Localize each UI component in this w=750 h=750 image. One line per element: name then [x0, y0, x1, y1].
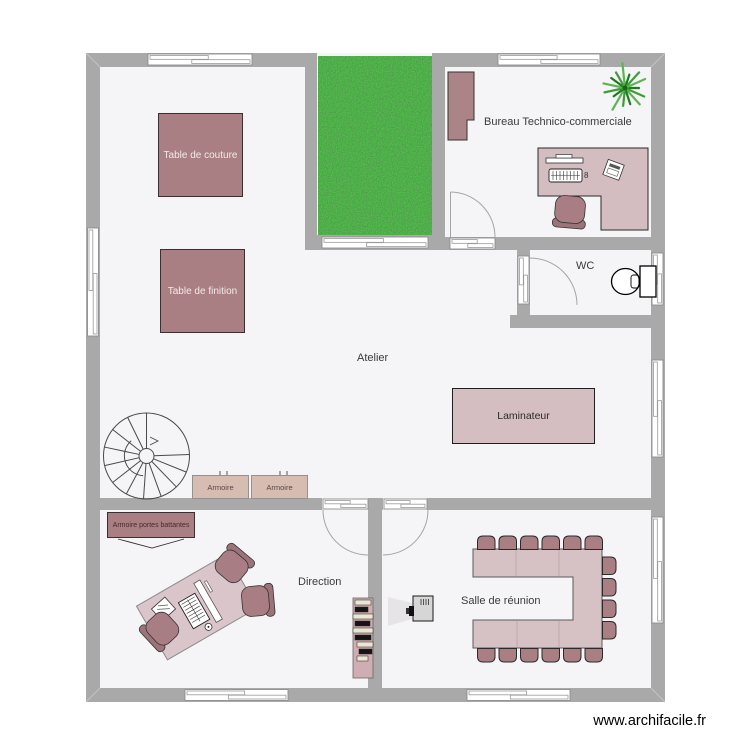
grass-patio-icon [318, 56, 432, 235]
meeting-chair-icon [603, 622, 617, 640]
meeting-chair-icon [521, 536, 539, 550]
room-label-salle-reunion: Salle de réunion [461, 595, 541, 607]
door-threshold-icon [384, 499, 427, 509]
desk-count-badge: 8 [584, 171, 588, 180]
meeting-chair-icon [478, 536, 496, 550]
room-label-direction: Direction [298, 576, 341, 588]
meeting-chair-icon [564, 536, 582, 550]
armoire-1-label: Armoire [207, 483, 233, 492]
meeting-chair-icon [521, 649, 539, 663]
floor-plan-canvas [0, 0, 750, 750]
watermark: www.archifacile.fr [593, 713, 706, 729]
meeting-chair-icon [585, 649, 603, 663]
office-chair-icon [552, 195, 588, 230]
meeting-chair-icon [585, 536, 603, 550]
window-icon [467, 690, 570, 701]
armoire-pb-label: Armoire portes battantes [113, 522, 190, 529]
office-chair-icon [241, 583, 276, 619]
bookshelf-icon [353, 598, 373, 678]
toilet-icon [612, 266, 657, 297]
door-threshold-icon [450, 238, 495, 249]
table-finition: Table de finition [160, 249, 245, 333]
meeting-chair-icon [603, 579, 617, 597]
door-threshold-icon [323, 499, 368, 509]
table-couture-label: Table de couture [164, 150, 238, 161]
meeting-chair-icon [564, 649, 582, 663]
armoire-2: Armoire [251, 475, 308, 499]
meeting-chair-icon [603, 557, 617, 575]
meeting-chair-icon [499, 536, 517, 550]
meeting-chair-icon [603, 600, 617, 618]
room-label-atelier: Atelier [357, 352, 388, 364]
monitor-icon [546, 158, 583, 163]
window-icon [652, 517, 663, 623]
laminateur-label: Laminateur [497, 410, 550, 422]
armoire-portes-battantes: Armoire portes battantes [107, 512, 195, 538]
floor-plan-page: Bureau Technico-commerciale WC Atelier D… [0, 0, 750, 750]
window-icon [88, 228, 99, 336]
table-couture: Table de couture [158, 113, 243, 197]
window-icon [652, 360, 663, 457]
armoire-1: Armoire [192, 475, 249, 499]
window-icon [185, 690, 288, 701]
laminateur-table: Laminateur [452, 388, 595, 444]
window-icon [148, 54, 252, 65]
meeting-chair-icon [499, 649, 517, 663]
window-icon [498, 54, 600, 65]
meeting-chair-icon [542, 649, 560, 663]
window-icon [322, 237, 428, 248]
armoire-2-label: Armoire [266, 483, 292, 492]
door-threshold-icon [518, 256, 529, 304]
meeting-chair-icon [478, 649, 496, 663]
table-finition-label: Table de finition [168, 286, 238, 297]
room-label-wc: WC [576, 260, 594, 272]
room-label-bureau: Bureau Technico-commerciale [484, 116, 632, 128]
keyboard-icon [549, 169, 582, 182]
meeting-chair-icon [542, 536, 560, 550]
